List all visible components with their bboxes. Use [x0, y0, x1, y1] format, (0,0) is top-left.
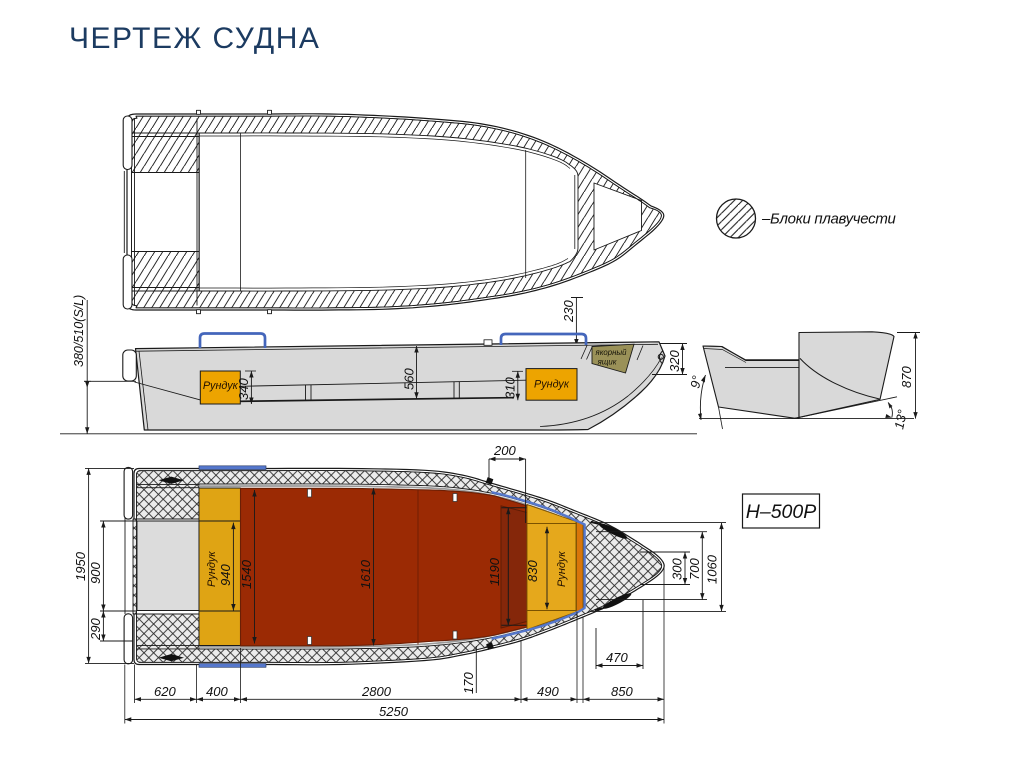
- svg-text:H–500P: H–500P: [746, 501, 816, 523]
- svg-text:–Блоки плавучести: –Блоки плавучести: [761, 211, 897, 228]
- svg-text:850: 850: [611, 684, 633, 699]
- svg-text:940: 940: [218, 564, 233, 586]
- svg-text:340: 340: [236, 378, 251, 400]
- svg-text:700: 700: [687, 558, 702, 580]
- svg-text:Рундук: Рундук: [206, 551, 218, 587]
- svg-text:560: 560: [402, 368, 417, 390]
- svg-text:1060: 1060: [705, 554, 720, 584]
- svg-text:5250: 5250: [379, 704, 409, 719]
- svg-text:470: 470: [606, 650, 628, 665]
- svg-text:870: 870: [899, 366, 914, 388]
- svg-text:400: 400: [206, 684, 228, 699]
- svg-text:830: 830: [525, 560, 540, 582]
- svg-text:Рундук: Рундук: [556, 551, 568, 587]
- svg-text:300: 300: [670, 558, 685, 580]
- svg-text:13°: 13°: [891, 408, 910, 430]
- svg-text:170: 170: [461, 672, 476, 694]
- svg-text:490: 490: [537, 684, 559, 699]
- svg-text:ящик: ящик: [597, 358, 617, 367]
- svg-text:якорный: якорный: [595, 348, 628, 357]
- svg-text:2800: 2800: [361, 684, 392, 699]
- svg-text:1950: 1950: [73, 551, 88, 581]
- svg-text:Рундук: Рундук: [534, 379, 570, 391]
- svg-text:1540: 1540: [239, 559, 254, 589]
- svg-text:620: 620: [154, 684, 176, 699]
- svg-text:200: 200: [493, 443, 516, 458]
- svg-text:290: 290: [88, 618, 103, 641]
- svg-text:230: 230: [561, 300, 576, 323]
- svg-text:1190: 1190: [487, 557, 502, 586]
- svg-text:320: 320: [667, 350, 682, 372]
- svg-text:Рундук: Рундук: [203, 380, 239, 392]
- svg-text:9°: 9°: [687, 374, 704, 389]
- svg-text:1610: 1610: [358, 559, 373, 589]
- svg-text:900: 900: [88, 562, 103, 584]
- svg-text:310: 310: [503, 377, 518, 399]
- svg-text:380/510(S/L): 380/510(S/L): [72, 295, 86, 367]
